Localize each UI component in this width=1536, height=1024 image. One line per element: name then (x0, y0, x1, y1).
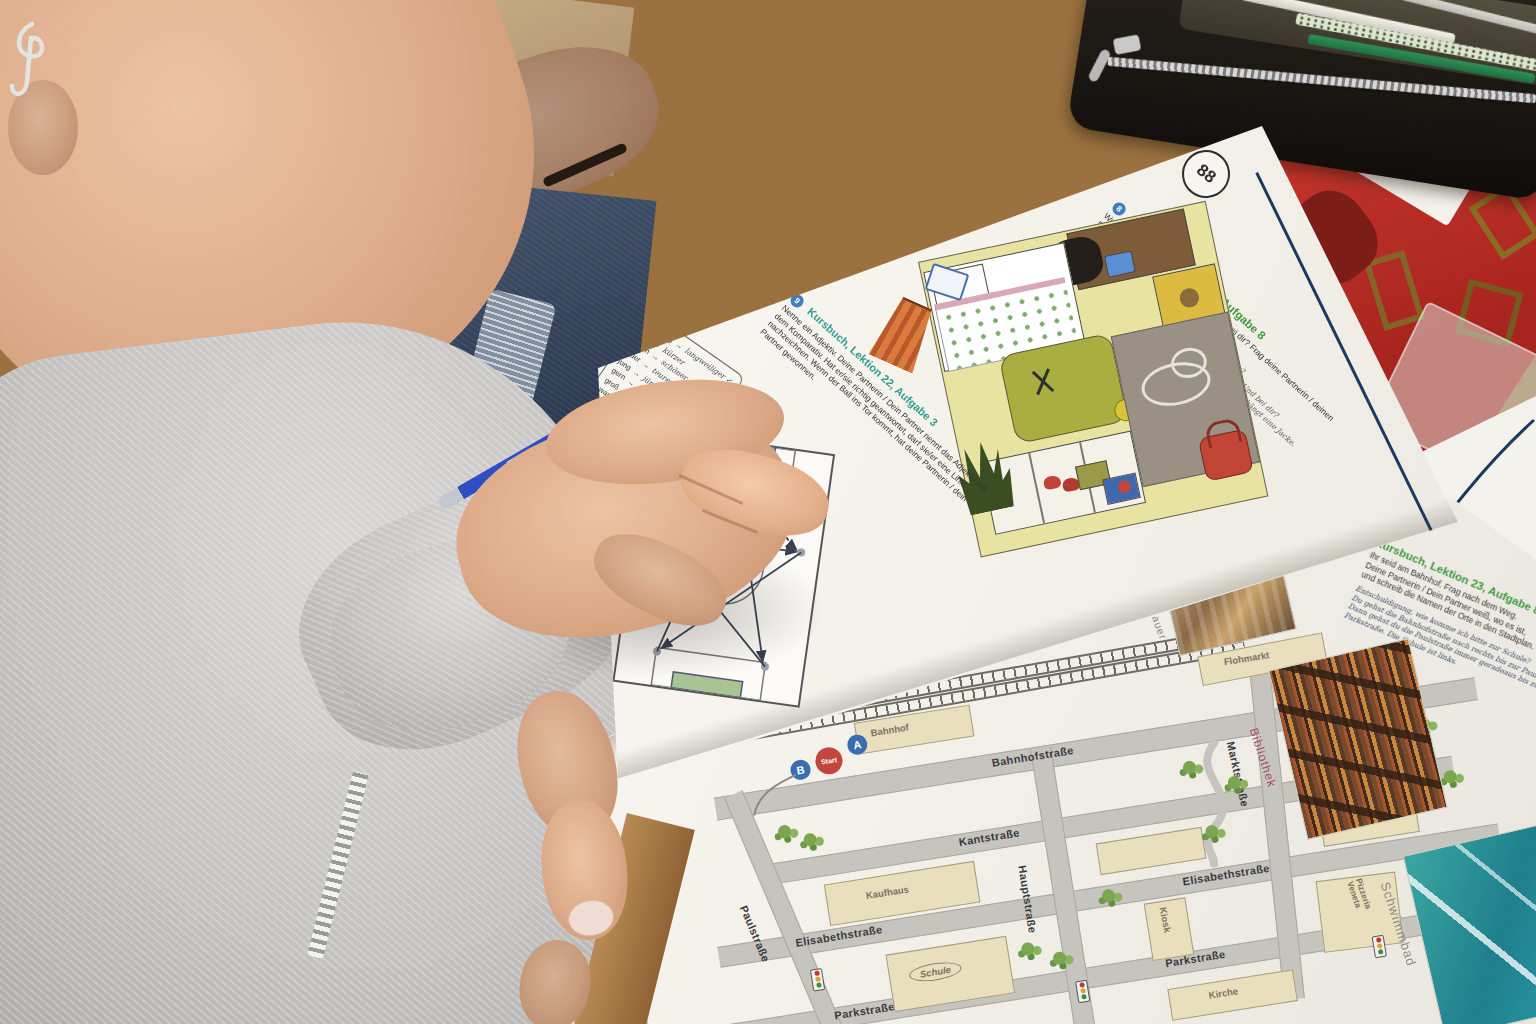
tree-icon (777, 824, 792, 839)
shelf-divider (1028, 453, 1044, 524)
traffic-light-icon (810, 968, 825, 992)
illustration-red-bag (1198, 429, 1254, 482)
treble-clef-earring (6, 18, 54, 110)
classroom-photo-scene: 544e (0, 0, 1536, 1024)
map-marker-start: Start (814, 745, 845, 776)
tree-icon (1443, 769, 1458, 784)
route-line (747, 771, 813, 820)
tree-icon (803, 832, 818, 847)
tree-icon (1020, 942, 1035, 957)
book-cover-doodle (1364, 250, 1425, 331)
park-path (1162, 735, 1270, 873)
